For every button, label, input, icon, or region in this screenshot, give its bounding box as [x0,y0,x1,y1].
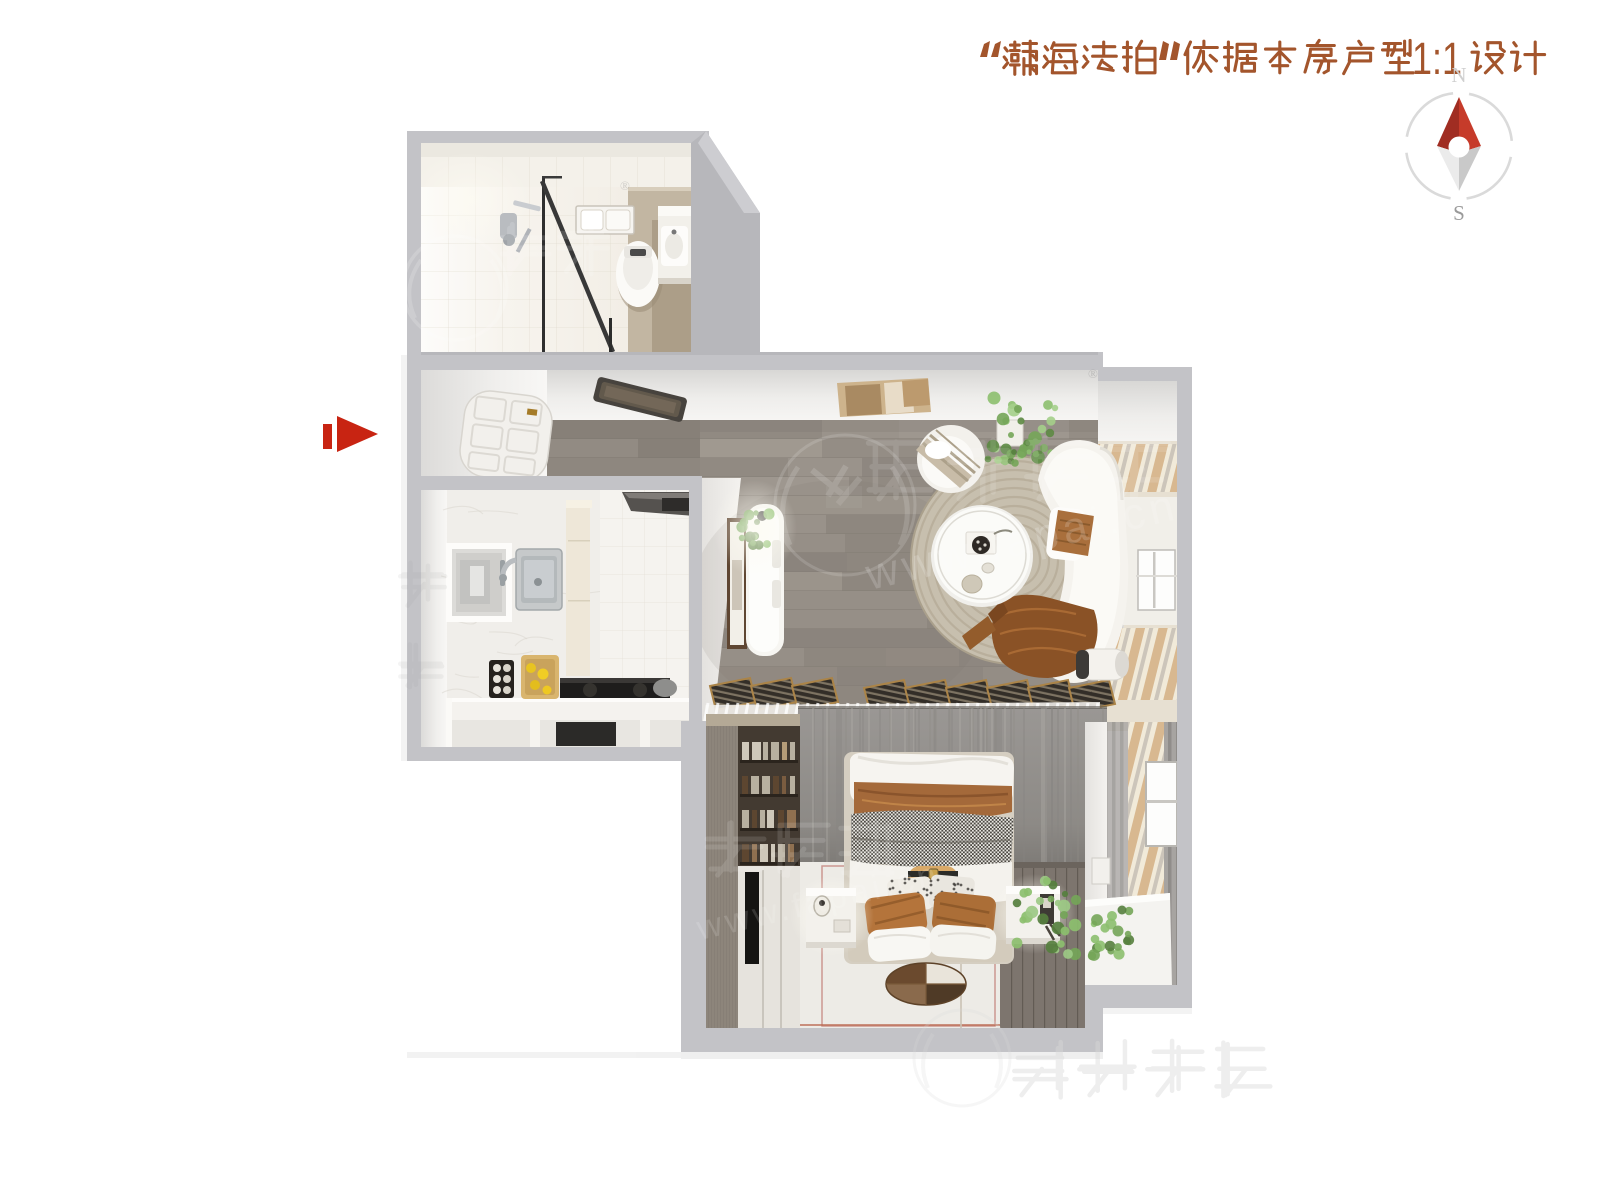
svg-text:®: ® [1088,366,1098,381]
svg-text:N: N [1451,63,1466,87]
svg-text:®: ® [620,178,630,193]
svg-text:S: S [1453,201,1465,225]
